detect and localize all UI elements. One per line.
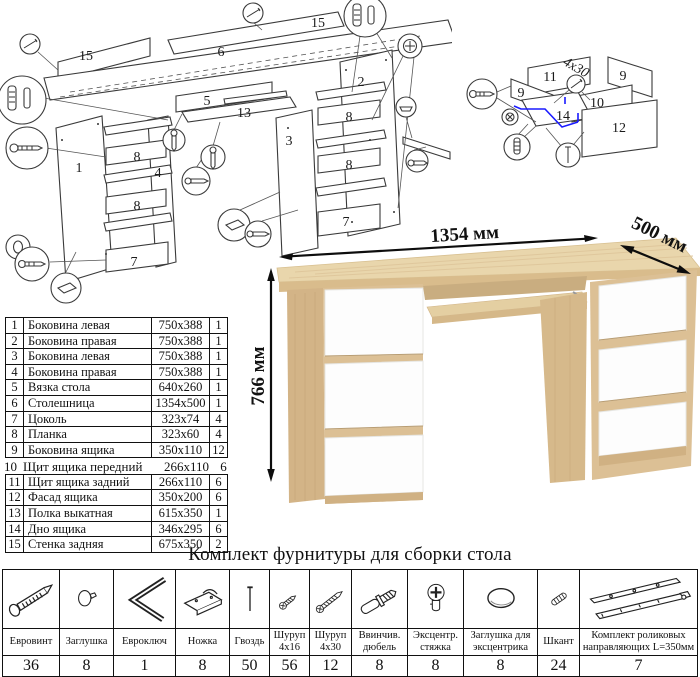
dowel-screw-icon (353, 4, 361, 26)
part-name: Вязка стола (24, 380, 152, 395)
hardware-kit-table: Евровинт Заглушка Евроключ Ножка Гвоздь … (2, 569, 698, 677)
part-qty: 1 (210, 349, 227, 364)
table-row: 10Щит ящика передний266x1106 (2, 458, 232, 474)
drawer-front (599, 276, 686, 340)
part-label: 4 (155, 166, 162, 181)
part-size: 323x60 (152, 427, 210, 442)
part-number: 3 (6, 349, 24, 364)
table-row: 14Дно ящика346x2956 (6, 521, 227, 537)
hardware-icon-cell (113, 570, 175, 628)
hardware-qty: 8 (59, 655, 113, 676)
part-qty: 6 (210, 475, 227, 490)
screw-head-icon (506, 113, 514, 121)
drawer-front (325, 435, 423, 496)
table-row: 13Полка выкатная615x3501 (6, 505, 227, 521)
part-qty: 6 (210, 490, 227, 505)
part-qty: 4 (210, 412, 227, 427)
parts-table-lower: 11Щит ящика задний266x1106 12Фасад ящика… (5, 474, 228, 553)
part-qty: 1 (210, 365, 227, 380)
part-number: 1 (6, 318, 24, 333)
hardware-icon-cell (269, 570, 309, 628)
hardware-icon-cell (407, 570, 463, 628)
hardware-kit-title: Комплект фурнитуры для сборки стола (0, 544, 700, 566)
hex-key-icon (117, 572, 173, 626)
part-number: 7 (6, 412, 24, 427)
part-label: 8 (346, 110, 353, 125)
parts-list-table: 1Боковина левая750x3881 2Боковина правая… (5, 317, 228, 553)
screw-long-icon (311, 572, 351, 626)
euro-screw-icon (470, 91, 495, 98)
roller-guides-icon (583, 572, 695, 626)
screw-short-icon (271, 572, 309, 626)
hardware-icon-cell (229, 570, 269, 628)
screw-icon (408, 160, 427, 166)
part-size: 350x110 (152, 443, 210, 458)
euro-screw-icon (171, 130, 177, 151)
table-row: 12Фасад ящика350x2006 (6, 489, 227, 505)
part-name: Боковина ящика (24, 443, 152, 458)
desk-product-render: 1354 мм 500 мм 766 мм (255, 228, 700, 558)
part-label: 8 (134, 150, 141, 165)
table-row: 4Боковина правая750x3881 (6, 364, 227, 380)
hardware-icon-cell (309, 570, 351, 628)
euro-screw-icon (210, 147, 216, 169)
drawer-assembly-diagram: 11 9 9 10 14 12 4x30 (450, 0, 700, 205)
part-size: 750x388 (152, 365, 210, 380)
part-size: 323x74 (152, 412, 210, 427)
hardware-name: Заглушка (59, 628, 113, 655)
part-qty: 1 (210, 396, 227, 411)
dowel-screw-icon (514, 138, 520, 154)
part-number: 13 (6, 506, 24, 521)
cam-cover-icon (473, 572, 529, 626)
part-qty: 1 (210, 506, 227, 521)
hardware-icon-cell (579, 570, 697, 628)
table-row: 5Вязка стола640x2601 (6, 379, 227, 395)
part-name: Дно ящика (24, 522, 152, 537)
part-label: 15 (311, 16, 325, 31)
part-label: 13 (237, 106, 251, 121)
hardware-name: Шуруп 4x16 (269, 628, 309, 655)
cap-icon (64, 572, 110, 626)
foot-icon (178, 572, 228, 626)
hardware-qty: 8 (407, 655, 463, 676)
part-number: 2 (6, 334, 24, 349)
part-label: 1 (76, 161, 83, 176)
hardware-name: Евроключ (113, 628, 175, 655)
drawer-front (599, 340, 686, 402)
part-name: Цоколь (24, 412, 152, 427)
part-size: 350x200 (152, 490, 210, 505)
part-size: 266x110 (158, 458, 215, 474)
part-name: Столешница (24, 396, 152, 411)
drawer-front (325, 361, 423, 429)
part-size: 640x260 (152, 380, 210, 395)
part-name: Щит ящика задний (24, 475, 152, 490)
part-label: 5 (204, 94, 211, 109)
hardware-name: Шкант (537, 628, 579, 655)
part-size: 266x110 (152, 475, 210, 490)
part-label: 15 (79, 49, 93, 64)
width-dimension-label: 1354 мм (430, 222, 500, 247)
assembly-instruction-sheet: 15 15 6 5 13 1 4 8 8 7 2 3 8 8 7 (0, 0, 700, 677)
part-name: Щит ящика передний (19, 458, 158, 474)
hardware-qty: 7 (579, 655, 697, 676)
height-dimension-label: 766 мм (248, 346, 269, 405)
hardware-name: Гвоздь (229, 628, 269, 655)
part-label: 6 (218, 45, 225, 60)
part-size: 615x350 (152, 506, 210, 521)
part-qty: 6 (210, 522, 227, 537)
dowel-screw-icon (354, 572, 406, 626)
wood-dowel-icon (540, 572, 578, 626)
part-size: 750x388 (152, 318, 210, 333)
part-name: Полка выкатная (24, 506, 152, 521)
part-number: 6 (6, 396, 24, 411)
part-number: 5 (6, 380, 24, 395)
table-row: 9Боковина ящика350x11012 (6, 442, 227, 458)
table-row: 7Цоколь323x744 (6, 411, 227, 427)
hardware-name: Комплект роликовых направляющих L=350мм (579, 628, 697, 655)
hardware-qty: 56 (269, 655, 309, 676)
part-number: 11 (6, 475, 24, 490)
hardware-name: Эксцентр. стяжка (407, 628, 463, 655)
part-number: 12 (6, 490, 24, 505)
part-size: 750x388 (152, 334, 210, 349)
part-name: Планка (24, 427, 152, 442)
wood-dowel-icon (368, 6, 374, 24)
hardware-icon-cell (537, 570, 579, 628)
hardware-icon-cell (463, 570, 537, 628)
screw-icon (185, 178, 208, 184)
part-label: 2 (358, 75, 365, 90)
dowel-screw-icon (8, 86, 16, 110)
part-label: 8 (346, 158, 353, 173)
part-label: 9 (620, 69, 627, 84)
part-number: 8 (6, 427, 24, 442)
part-number: 4 (6, 365, 24, 380)
table-row: 6Столешница1354x5001 (6, 395, 227, 411)
part-label: 11 (543, 70, 556, 85)
part-qty: 1 (210, 380, 227, 395)
hardware-icon-cell (175, 570, 229, 628)
parts-table-upper: 1Боковина левая750x3881 2Боковина правая… (5, 317, 228, 458)
hardware-name: Ввинчив. дюбель (351, 628, 407, 655)
part-label: 14 (556, 109, 570, 124)
hardware-qty: 1 (113, 655, 175, 676)
right-pedestal-inner-side (540, 292, 587, 483)
hardware-qty: 50 (229, 655, 269, 676)
hardware-qty: 8 (175, 655, 229, 676)
part-name: Боковина левая (24, 349, 152, 364)
hardware-icon-cell (59, 570, 113, 628)
part-label: 9 (518, 86, 525, 101)
part-qty: 12 (210, 443, 227, 458)
part-name: Боковина правая (24, 334, 152, 349)
part-size: 750x388 (152, 349, 210, 364)
part-label: 10 (590, 96, 604, 111)
hardware-name: Евровинт (3, 628, 59, 655)
cam-lock-icon (404, 40, 417, 53)
hardware-name: Заглушка для эксцентрика (463, 628, 537, 655)
table-row: 1Боковина левая750x3881 (6, 318, 227, 333)
table-row: 3Боковина левая750x3881 (6, 348, 227, 364)
cam-lock-icon (414, 572, 458, 626)
part-name: Фасад ящика (24, 490, 152, 505)
part-number: 10 (2, 458, 19, 474)
wood-dowel-icon (24, 88, 30, 108)
hardware-qty: 36 (3, 655, 59, 676)
left-side-panel (56, 116, 112, 282)
rail-end-icon (400, 107, 412, 111)
table-row: 8Планка323x604 (6, 426, 227, 442)
hardware-qty: 24 (537, 655, 579, 676)
hardware-name: Шуруп 4x30 (309, 628, 351, 655)
part-qty: 1 (210, 318, 227, 333)
part-label: 8 (134, 199, 141, 214)
hardware-icon-cell (3, 570, 59, 628)
hardware-name: Ножка (175, 628, 229, 655)
drawer-front (325, 288, 423, 356)
left-pedestal-side (287, 288, 325, 503)
part-number: 14 (6, 522, 24, 537)
part-qty: 4 (210, 427, 227, 442)
part-qty: 6 (215, 458, 232, 474)
table-row: 11Щит ящика задний266x1106 (6, 475, 227, 490)
hardware-icon-cell (351, 570, 407, 628)
part-qty: 1 (210, 334, 227, 349)
part-name: Боковина левая (24, 318, 152, 333)
table-row: 2Боковина правая750x3881 (6, 333, 227, 349)
screw-icon (19, 261, 46, 268)
hardware-qty: 8 (351, 655, 407, 676)
part-size: 1354x500 (152, 396, 210, 411)
euro-screw-icon (5, 572, 57, 626)
part-label: 12 (612, 121, 626, 136)
part-label: 3 (286, 134, 293, 149)
part-name: Боковина правая (24, 365, 152, 380)
hardware-qty: 12 (309, 655, 351, 676)
nail-icon (232, 572, 268, 626)
part-number: 9 (6, 443, 24, 458)
hardware-qty: 8 (463, 655, 537, 676)
part-label: 7 (131, 255, 138, 270)
part-size: 346x295 (152, 522, 210, 537)
